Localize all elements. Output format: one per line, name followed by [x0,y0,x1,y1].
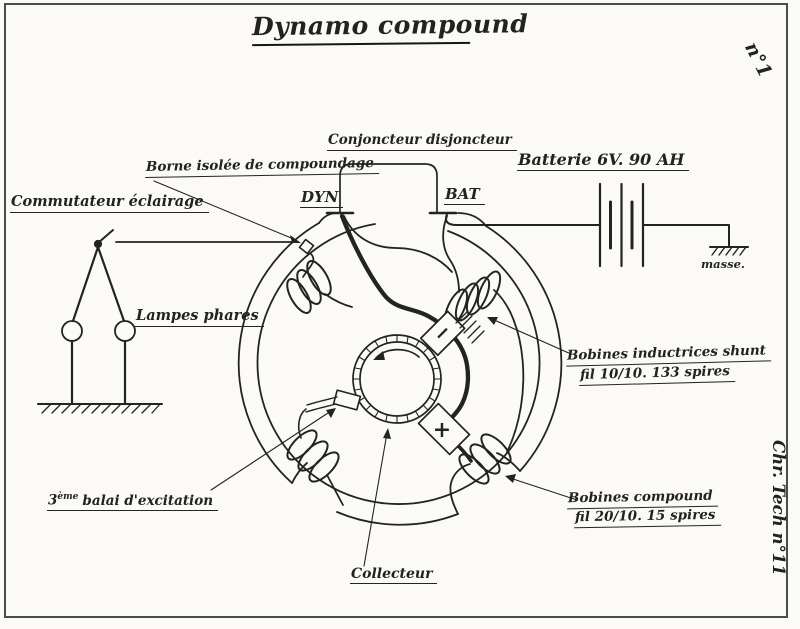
label-batterie: Batterie 6V. 90 AH [517,151,689,171]
compoundage-coil [283,258,336,317]
label-lampes-phares: Lampes phares [135,308,264,327]
label-terminal-dyn: DYN [300,189,343,208]
balai-ordinal: ème [57,492,78,502]
page-title: Dynamo compound [252,11,470,46]
label-bobines-compound-1: Bobines compound [567,489,718,509]
commutator [353,335,441,423]
headlamps [38,321,162,413]
label-collecteur: Collecteur [350,566,437,584]
battery-symbol [600,184,643,266]
diagram-canvas: − + [0,0,800,629]
balai-text: balai d'excitation [82,493,213,509]
label-conjoncteur: Conjoncteur disjoncteur [327,133,517,151]
signature-note: Chr. Tech n°11 [768,440,787,576]
label-masse: masse. [701,258,745,271]
collecteur-leader [364,428,391,566]
label-commutateur-eclairage: Commutateur éclairage [10,194,209,213]
plus-sign: + [433,417,451,443]
label-bobines-compound-2: fil 20/10. 15 spires [574,508,721,528]
schematic-sheet: − + [0,0,800,629]
battery-circuit-wire [446,214,729,247]
masse-ground-icon [710,247,748,255]
label-terminal-bat: BAT [444,186,485,205]
balai-number: 3 [48,493,57,509]
label-troisieme-balai: 3èmebalai d'excitation [47,492,218,511]
rotation-arrow-icon [373,350,419,360]
